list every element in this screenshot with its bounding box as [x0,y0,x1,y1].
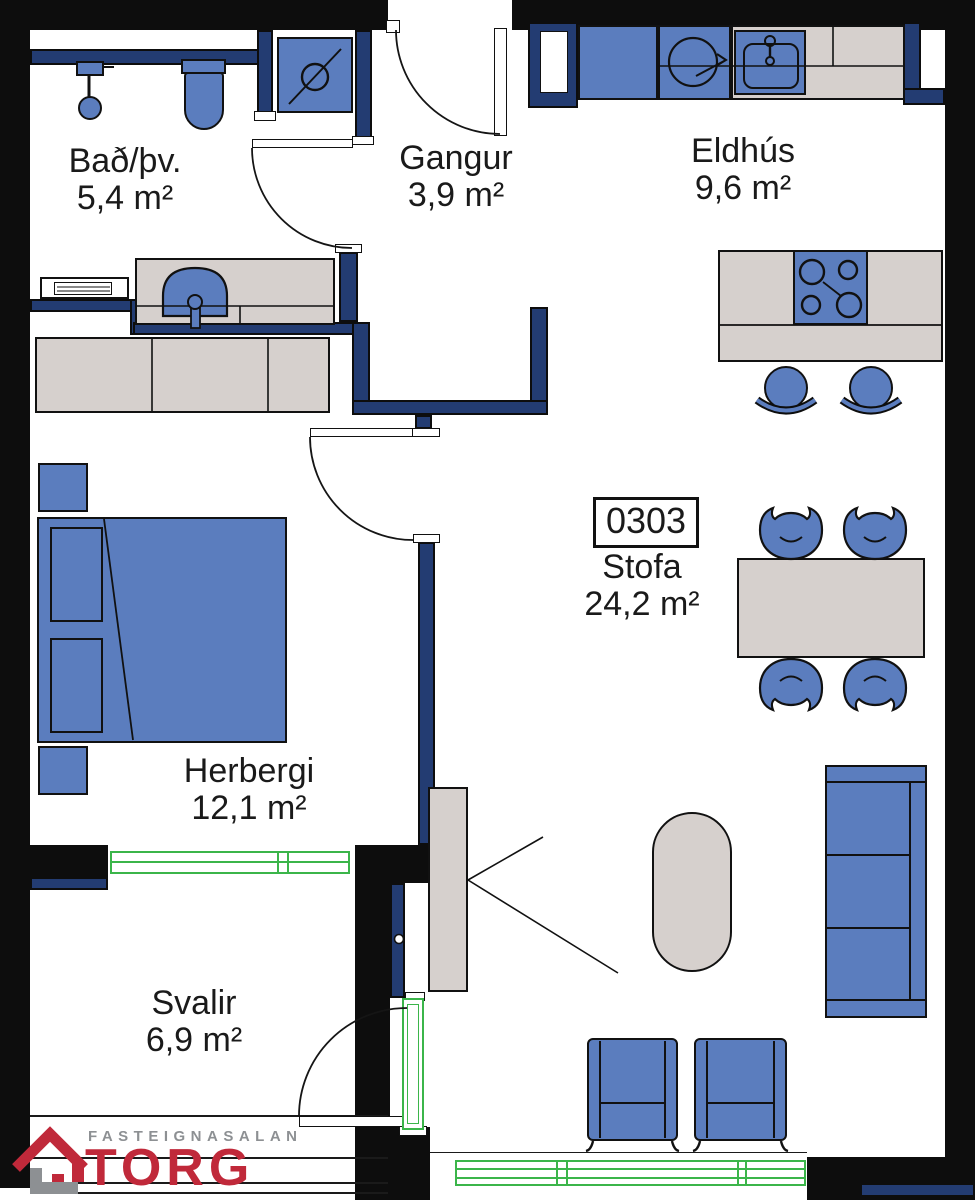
coffee-table [652,812,732,972]
pillow-top [50,527,103,622]
bottom-right-lining [860,1183,975,1197]
post-beddoor-top [412,428,440,437]
bar-stool-left [764,366,808,410]
vanity-counter [135,258,335,325]
window-living [455,1160,806,1186]
room-name: Svalir [146,985,242,1022]
closet-wall-right [530,307,548,415]
label-kitchen: Eldhús 9,6 m² [691,133,795,207]
wall-balcony-junction [355,845,437,883]
window-living-div4 [745,1160,747,1186]
wall-balcony-right [355,883,390,1200]
room-area: 3,9 m² [399,177,512,214]
wardrobe [35,337,330,413]
floor-plan: Bað/þv. 5,4 m² Gangur 3,9 m² Eldhús 9,6 … [0,0,975,1200]
wall-right [945,0,975,1200]
label-living-room: Stofa 24,2 m² [584,549,699,623]
nightstand-bottom [38,746,88,795]
room-name: Stofa [584,549,699,586]
wall-left [0,0,30,1188]
window-living-div1 [556,1160,558,1186]
label-balcony: Svalir 6,9 m² [146,985,242,1059]
sofa [825,765,927,1018]
unit-number: 0303 [606,500,686,541]
beddoor-stub [415,415,432,429]
entrance-door-arc [396,30,500,134]
window-living-rail2 [455,1177,806,1179]
shaft-niche-inner [540,31,568,93]
bedroom-door-arc [310,437,413,540]
balcony-top-lining [30,877,108,890]
label-hallway: Gangur 3,9 m² [399,140,512,214]
nightstand-top [38,463,88,512]
post-bathdoor-top [352,136,374,145]
room-area: 5,4 m² [69,180,182,217]
entry-cabinet [428,787,468,992]
window-bedroom-rail [110,861,350,863]
dining-chair [844,508,906,559]
pillow-bottom [50,638,103,733]
window-living-div2 [566,1160,568,1186]
unit-number-box: 0303 [593,497,699,548]
window-bedroom-div1 [277,851,279,874]
floor-drain-head [76,61,104,76]
balcony-right-lining [390,883,405,998]
room-name: Gangur [399,140,512,177]
room-area: 24,2 m² [584,586,699,623]
armchair-feet [586,1141,788,1151]
bedroom-door-leaf [310,428,413,437]
bath-pipe-ledge [30,49,263,65]
room-name: Bað/þv. [69,143,182,180]
post-bathdoor-bottom [335,244,362,253]
kitchen-niche-bottom [903,88,945,105]
wall-bathdoor-south [339,252,358,322]
dining-chair [760,659,822,710]
cooktop [793,250,868,325]
floor-drain-circle [78,96,102,120]
room-name: Herbergi [184,753,314,790]
bar-stool-right [849,366,893,410]
wall-bath-hall [355,30,372,139]
balcony-door-arc [299,1008,407,1116]
room-area: 9,6 m² [691,170,795,207]
balcony-door-panel-inner [407,1004,419,1124]
dining-chair [844,659,906,710]
label-bedroom: Herbergi 12,1 m² [184,753,314,827]
post-beddoor-bottom [413,534,440,543]
dining-chair [760,508,822,559]
wall-top-left [0,0,388,30]
dining-table [737,558,925,658]
room-name: Eldhús [691,133,795,170]
room-area: 6,9 m² [146,1022,242,1059]
window-living-div3 [737,1160,739,1186]
toilet-bowl [184,72,224,130]
post-entrance-left [386,20,400,33]
bathroom-door-leaf [252,139,353,148]
post-shower-wall [254,111,276,121]
wall-bath-bed-upper [30,299,143,312]
appliance-unit [658,25,731,100]
entry-fan-lines [468,837,618,973]
armchair-right [694,1038,787,1141]
radiator-core [54,282,112,295]
fridge [578,25,658,100]
balcony-door-leaf [299,1116,407,1127]
kitchen-sink-unit [734,30,806,95]
label-bathroom: Bað/þv. 5,4 m² [69,143,182,217]
shower [277,37,353,113]
entrance-door-leaf [494,28,507,136]
wall-balcony-top [0,845,108,877]
window-living-rail1 [455,1168,806,1170]
armchair-left [587,1038,678,1141]
wall-shower-left [257,30,273,115]
bathroom-door-arc [252,148,352,248]
closet-wall-bottom [352,400,548,415]
room-area: 12,1 m² [184,790,314,827]
logo-brand-text: TORG [85,1142,254,1194]
wall-bottom-stub [390,1127,430,1200]
window-bedroom-div2 [287,851,289,874]
